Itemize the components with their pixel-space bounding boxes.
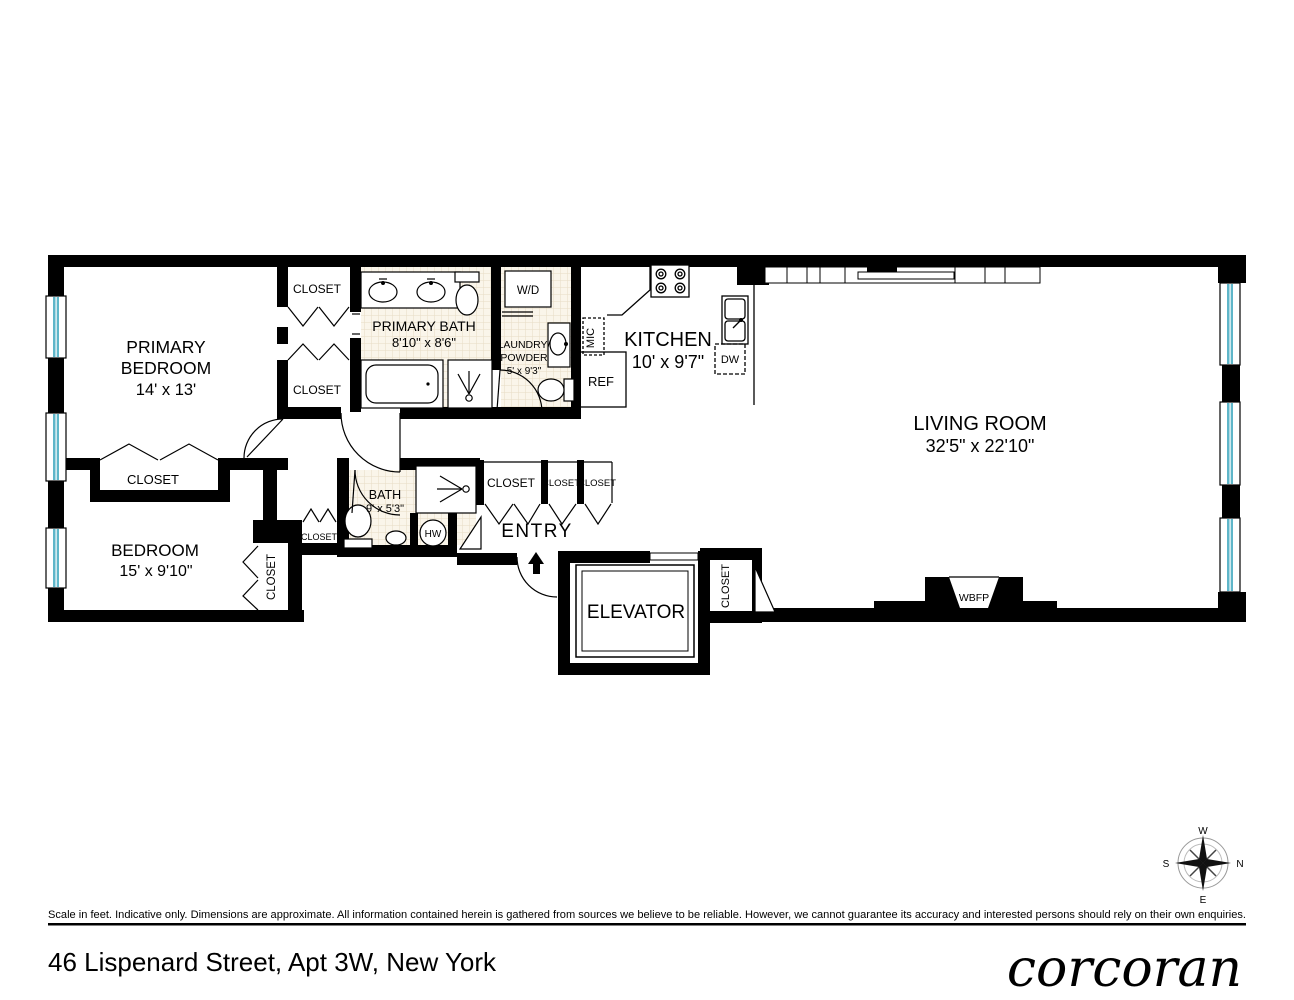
- washer-dryer-label: W/D: [517, 285, 539, 297]
- closet-door-leaf: [755, 567, 775, 612]
- divider-line: [48, 923, 1246, 926]
- closet-bifold-door: [100, 444, 218, 460]
- living-room-label: LIVING ROOM: [913, 413, 1046, 435]
- window: [1220, 402, 1240, 485]
- bath-label: BATH: [369, 488, 401, 502]
- microwave-label: MIC: [585, 328, 597, 348]
- primary-bath-label: PRIMARY BATH: [372, 318, 475, 334]
- closet-bifold-door: [585, 504, 611, 524]
- compass-w: W: [1198, 826, 1208, 837]
- double-vanity-icon: [361, 272, 460, 308]
- closet-label: CLOSET: [301, 532, 338, 542]
- closet-label: CLOSET: [293, 282, 342, 296]
- entry-arrow-icon: [528, 552, 544, 574]
- closet-label: CLOSET: [542, 478, 580, 489]
- window: [1220, 283, 1240, 365]
- compass-rose: W E S N: [1163, 826, 1244, 906]
- bath-dims: 9' x 5'3": [366, 503, 404, 515]
- window: [1220, 518, 1240, 592]
- powder-sink-icon: [548, 323, 570, 367]
- refrigerator-label: REF: [588, 374, 614, 389]
- closet-label: CLOSET: [578, 478, 616, 489]
- primary-bedroom-label2: BEDROOM: [121, 358, 211, 378]
- footer: Scale in feet. Indicative only. Dimensio…: [48, 909, 1246, 999]
- primary-bath-dims: 8'10" x 8'6": [392, 335, 456, 350]
- laundry-dims: 5' x 9'3": [507, 366, 542, 377]
- laundry-label: LAUNDRY/: [498, 339, 551, 351]
- window: [46, 413, 66, 481]
- closet-label: CLOSET: [720, 564, 732, 608]
- living-room-dims: 32'5" x 22'10": [926, 436, 1035, 456]
- closet-bifold-door: [243, 546, 258, 610]
- primary-bedroom-label: PRIMARY: [126, 337, 206, 357]
- powder-toilet-icon: [538, 379, 574, 401]
- closet-bifold-door: [288, 307, 349, 326]
- dishwasher-label: DW: [721, 354, 740, 366]
- compass-e: E: [1200, 895, 1207, 906]
- kitchen-dims: 10' x 9'7": [632, 352, 704, 372]
- shower-icon: [448, 360, 492, 408]
- shower-icon: [416, 466, 476, 513]
- bedroom-label: BEDROOM: [111, 541, 199, 560]
- closet-label: CLOSET: [266, 554, 278, 600]
- address-title: 46 Lispenard Street, Apt 3W, New York: [48, 947, 497, 977]
- entry-label: ENTRY: [501, 521, 573, 542]
- window: [46, 296, 66, 358]
- laundry-label2: POWDER: [500, 352, 548, 364]
- cooktop-icon: [651, 265, 689, 297]
- bedroom-dims: 15' x 9'10": [119, 563, 192, 580]
- compass-s: S: [1163, 859, 1170, 870]
- compass-n: N: [1236, 859, 1243, 870]
- kitchen-sink-icon: [722, 296, 748, 344]
- closet-bifold-door: [303, 509, 336, 522]
- closet-label: CLOSET: [293, 383, 342, 397]
- kitchen-label: KITCHEN: [624, 329, 712, 351]
- closet-label: CLOSET: [127, 472, 179, 487]
- floor-plan: PRIMARY BEDROOM 14' x 13' PRIMARY BATH 8…: [0, 0, 1294, 1000]
- primary-bath-door: [341, 413, 400, 472]
- elevator-label: ELEVATOR: [587, 602, 685, 623]
- closet-bifold-door: [288, 344, 349, 360]
- disclaimer-text: Scale in feet. Indicative only. Dimensio…: [48, 909, 1246, 921]
- floorplan-page: PRIMARY BEDROOM 14' x 13' PRIMARY BATH 8…: [0, 0, 1294, 1000]
- toilet-icon: [455, 272, 479, 315]
- water-heater-label: HW: [425, 529, 442, 540]
- window: [46, 528, 66, 588]
- bathtub-icon: [361, 360, 443, 408]
- brand-logo: corcoran: [1007, 939, 1242, 999]
- fireplace-label: WBFP: [959, 592, 989, 604]
- primary-bedroom-dims: 14' x 13': [136, 381, 196, 399]
- closet-label: CLOSET: [487, 476, 536, 490]
